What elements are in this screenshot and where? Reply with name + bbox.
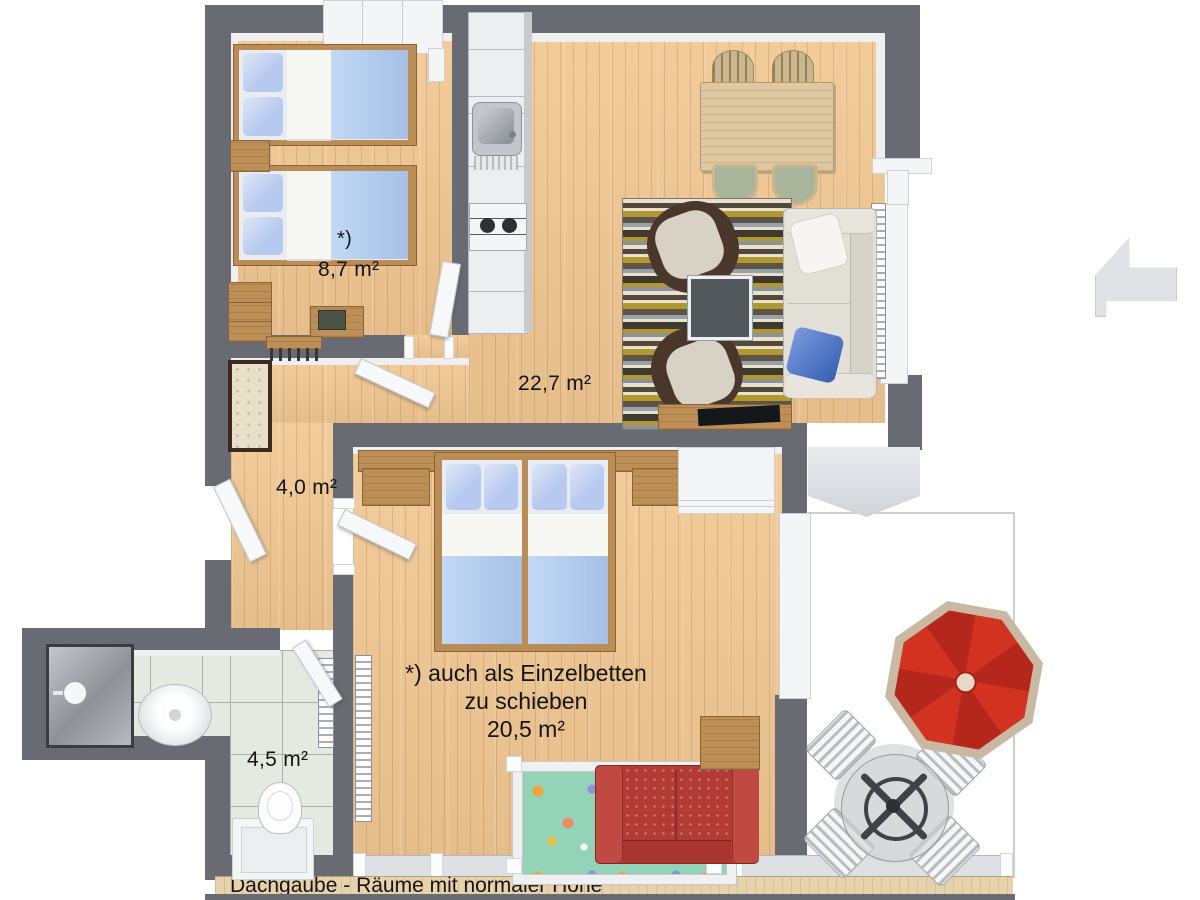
door-jamb (444, 336, 454, 359)
floor-plan: Dachgaube - Räume mit normaler Höhe (0, 0, 1200, 900)
kids-wardrobe-door-open (428, 48, 445, 82)
kids-desk-laptop (318, 310, 346, 330)
bottom-dark-line (205, 894, 1015, 900)
crib-post (506, 858, 522, 874)
coat-hook (270, 348, 273, 361)
dining-chair (772, 50, 814, 86)
dining-chair (712, 50, 754, 86)
kitchen-sink (472, 102, 522, 156)
kids-dresser (228, 282, 272, 342)
kids-room-footnote-mark: *) (337, 228, 352, 251)
door-jamb (333, 564, 355, 575)
terrace-table-hub (886, 799, 900, 813)
coffee-table (688, 276, 752, 340)
kids-bed-1 (233, 44, 417, 146)
wall-bedroom-left-lower (333, 572, 353, 880)
living-room-area-label: 22,7 m² (518, 372, 591, 396)
toilet (258, 782, 302, 834)
red-sofa (595, 765, 759, 864)
kitchen-counter-side-face (524, 12, 532, 332)
sofa (783, 208, 877, 398)
wall-top (205, 5, 888, 33)
wall-right-upper (885, 5, 920, 165)
master-bedroom-area-label: 20,5 m² (370, 715, 682, 743)
living-right-face (876, 42, 885, 165)
dining-table (700, 82, 834, 172)
coat-rack (266, 336, 322, 350)
bedroom-side-table (700, 716, 760, 770)
annotation-line-1: *) auch als Einzelbetten (370, 659, 682, 687)
double-bed (434, 452, 616, 652)
doorway-floor-patch (405, 335, 469, 358)
nightstand-left (362, 468, 430, 506)
kitchen-stove (469, 203, 527, 251)
coat-hook (288, 348, 291, 361)
hall-bench (228, 360, 272, 452)
sink-drainer (474, 156, 518, 170)
wall-se-living-corner (888, 375, 922, 450)
coat-hook (306, 348, 309, 361)
bedroom-right-window (779, 513, 811, 699)
coat-hook (315, 348, 318, 361)
kids-room-area-label: 8,7 m² (318, 258, 379, 282)
annotation-line-2: zu schieben (370, 687, 682, 715)
bedroom-wardrobe (678, 447, 775, 514)
shower (46, 644, 134, 748)
hallway-area-label: 4,0 m² (276, 476, 337, 500)
kitchen-counter (468, 12, 528, 334)
wall-left-lowseg (205, 560, 231, 628)
roof-step-piece (808, 447, 920, 517)
master-bedroom-annotation: *) auch als Einzelbetten zu schieben 20,… (370, 659, 682, 743)
faucet-icon (509, 131, 516, 138)
shower-head-icon (63, 681, 87, 705)
living-window-sill-notch (887, 170, 909, 206)
roof-marker (1095, 237, 1177, 317)
wall-bedroom-right-lower (775, 695, 807, 878)
washbasin (138, 684, 212, 746)
door-jamb (404, 336, 414, 359)
crib-post (506, 756, 522, 772)
kids-nightstand (230, 140, 270, 172)
burner-icon (502, 218, 517, 233)
wall-bedroom-right-upper (782, 447, 807, 515)
coat-hook (297, 348, 300, 361)
kids-bed-2 (233, 165, 417, 266)
coat-hook (279, 348, 282, 361)
bathroom-area-label: 4,5 m² (247, 748, 308, 772)
burner-icon (480, 218, 495, 233)
